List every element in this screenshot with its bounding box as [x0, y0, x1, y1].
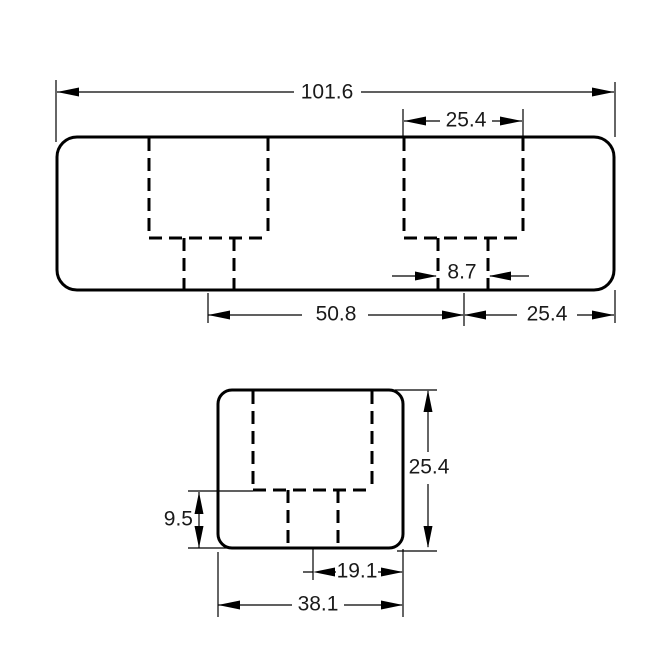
dim-side-overall-width-value: 38.1 [298, 593, 339, 616]
dim-side-slot-depth-value: 9.5 [164, 508, 193, 531]
dim-side-center-to-edge-value: 19.1 [337, 560, 378, 583]
dim-top-slot-width: 8.7 [392, 261, 529, 284]
side-view-outline [218, 390, 403, 548]
dim-top-overall-width-value: 101.6 [301, 81, 354, 104]
dim-top-pocket-width: 25.4 [403, 109, 523, 137]
dim-top-overall-width: 101.6 [56, 80, 615, 142]
technical-drawing-canvas: 101.6 25.4 8.7 50.8 [0, 0, 670, 670]
dim-top-edge-distance: 25.4 [464, 290, 615, 326]
side-view: 25.4 9.5 19.1 38.1 [164, 390, 450, 617]
dim-top-slot-spacing-value: 50.8 [316, 303, 357, 326]
top-view-left-slot-hidden-lines [184, 238, 234, 289]
top-view-left-pocket-hidden-lines [149, 138, 268, 238]
dim-top-slot-width-value: 8.7 [447, 261, 476, 284]
dim-top-slot-spacing: 50.8 [208, 293, 464, 326]
top-view-outline [57, 137, 614, 290]
side-view-slot-hidden-lines [288, 490, 338, 547]
dim-side-slot-depth: 9.5 [164, 491, 253, 548]
top-view-right-pocket-hidden-lines [404, 138, 523, 238]
dim-top-edge-distance-value: 25.4 [527, 303, 568, 326]
dim-top-pocket-width-value: 25.4 [446, 109, 487, 132]
top-view: 101.6 25.4 8.7 50.8 [56, 80, 615, 326]
technical-drawing-page: 101.6 25.4 8.7 50.8 [0, 0, 670, 670]
dim-side-center-to-edge: 19.1 [303, 549, 403, 583]
dim-side-overall-height-value: 25.4 [409, 456, 450, 479]
side-view-pocket-hidden-lines [253, 391, 372, 490]
